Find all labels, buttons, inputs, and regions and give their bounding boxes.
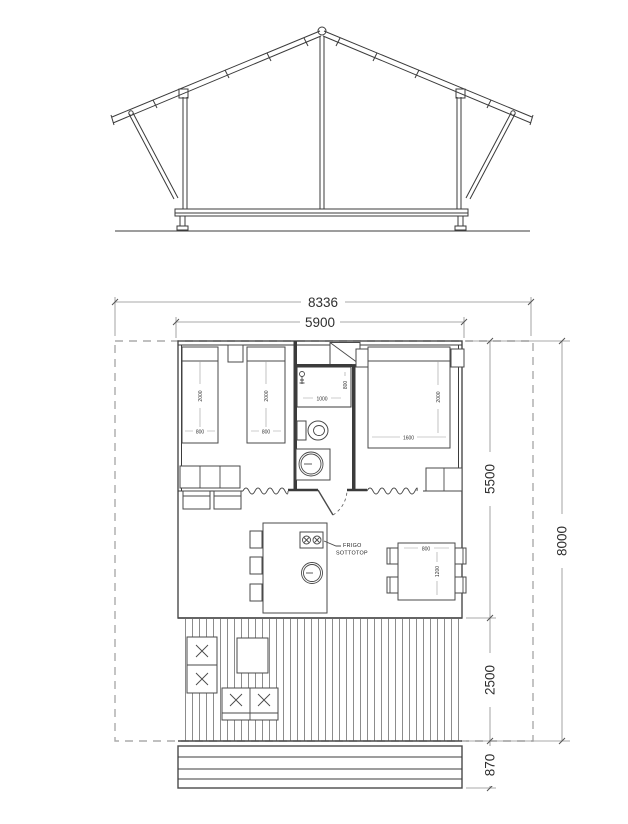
stools: [183, 491, 241, 509]
shower-head-icon: [300, 372, 305, 377]
deck: [178, 618, 462, 741]
double-bed-length-label: 2000: [436, 391, 442, 402]
steps: [178, 746, 462, 788]
stool-2: [214, 491, 241, 509]
entry-door: [318, 490, 347, 515]
bench-left: [180, 466, 240, 488]
foot-pad-right: [455, 226, 466, 230]
cabin-depth-label: 5500: [483, 464, 498, 494]
rafter-ticks: [153, 38, 491, 108]
toilet: [297, 421, 328, 440]
canvas-wall-left: [243, 488, 288, 494]
bathroom-right-wall: [352, 365, 356, 491]
washbasin: [296, 449, 330, 480]
double-bed: 2000 1600: [368, 347, 450, 448]
outdoor-bench: [222, 688, 278, 720]
blueprint-canvas: 8336 5900 5500 2500 870: [0, 0, 628, 824]
bar-stool-1: [250, 531, 262, 548]
fridge-label-line2: SOTTOTOP: [336, 551, 368, 557]
dining-set: 800 1200: [387, 543, 466, 600]
nightstand-left: [356, 349, 369, 367]
front-elevation: [111, 27, 533, 231]
lounge-chair: [187, 637, 217, 693]
door-leaf: [318, 490, 333, 515]
shower-depth-label: 800: [343, 381, 349, 390]
single-bed-1: 2000 800: [182, 347, 218, 443]
stool-1: [183, 491, 210, 509]
dining-chair-1: [387, 548, 398, 564]
wall-posts: [183, 37, 461, 209]
dimension-total-depth: 8000: [554, 338, 570, 744]
stove: [300, 532, 323, 548]
bed1-length-label: 2000: [198, 390, 204, 401]
bar-stool-2: [250, 557, 262, 574]
shower-width-label: 1000: [316, 397, 327, 403]
table-length-label: 1200: [435, 566, 441, 577]
bed2-length-label: 2000: [264, 390, 270, 401]
cabin-width-label: 5900: [305, 315, 335, 330]
roof-rafters: [111, 31, 533, 125]
deck-planks: [179, 619, 461, 741]
nightstand-between-beds: [228, 345, 243, 362]
dining-table: 800 1200: [398, 543, 455, 600]
dining-chair-4: [455, 577, 466, 593]
coffee-table: [237, 638, 268, 673]
door-swing-arc: [333, 490, 347, 515]
kitchen-island: FRIGO SOTTOTOP: [250, 523, 368, 613]
foot-right: [458, 216, 463, 226]
nightstand-right: [451, 349, 464, 367]
floor-plan: 8336 5900 5500 2500 870: [112, 294, 570, 791]
bathroom: 1000 800: [294, 341, 361, 491]
canvas-wall-right: [367, 488, 417, 494]
dining-chair-3: [455, 548, 466, 564]
architectural-drawing: 8336 5900 5500 2500 870: [0, 0, 628, 824]
dimension-cabin-width: 5900: [173, 314, 467, 338]
foot-left: [180, 216, 185, 226]
deck-depth-label: 2500: [483, 665, 498, 695]
dining-chair-2: [387, 577, 398, 593]
double-bed-width-label: 1600: [403, 436, 414, 442]
bedroom-right: 2000 1600: [356, 347, 464, 491]
total-depth-label: 8000: [555, 526, 570, 556]
overall-width-label: 8336: [308, 295, 338, 310]
shower: 1000 800: [297, 364, 352, 407]
table-width-label: 800: [422, 547, 431, 553]
bench-right: [426, 468, 462, 491]
bedroom-left: 2000 800 2000 800: [180, 345, 285, 488]
fridge-note: FRIGO SOTTOTOP: [324, 541, 368, 557]
bed1-width-label: 800: [196, 430, 205, 436]
floor-platform: [175, 209, 468, 230]
single-bed-2: 2000 800: [247, 347, 285, 443]
fridge-label-line1: FRIGO: [343, 543, 362, 549]
bed2-width-label: 800: [262, 430, 271, 436]
foot-pad-left: [177, 226, 188, 230]
bar-stool-3: [250, 584, 262, 601]
steps-depth-label: 870: [483, 754, 498, 777]
